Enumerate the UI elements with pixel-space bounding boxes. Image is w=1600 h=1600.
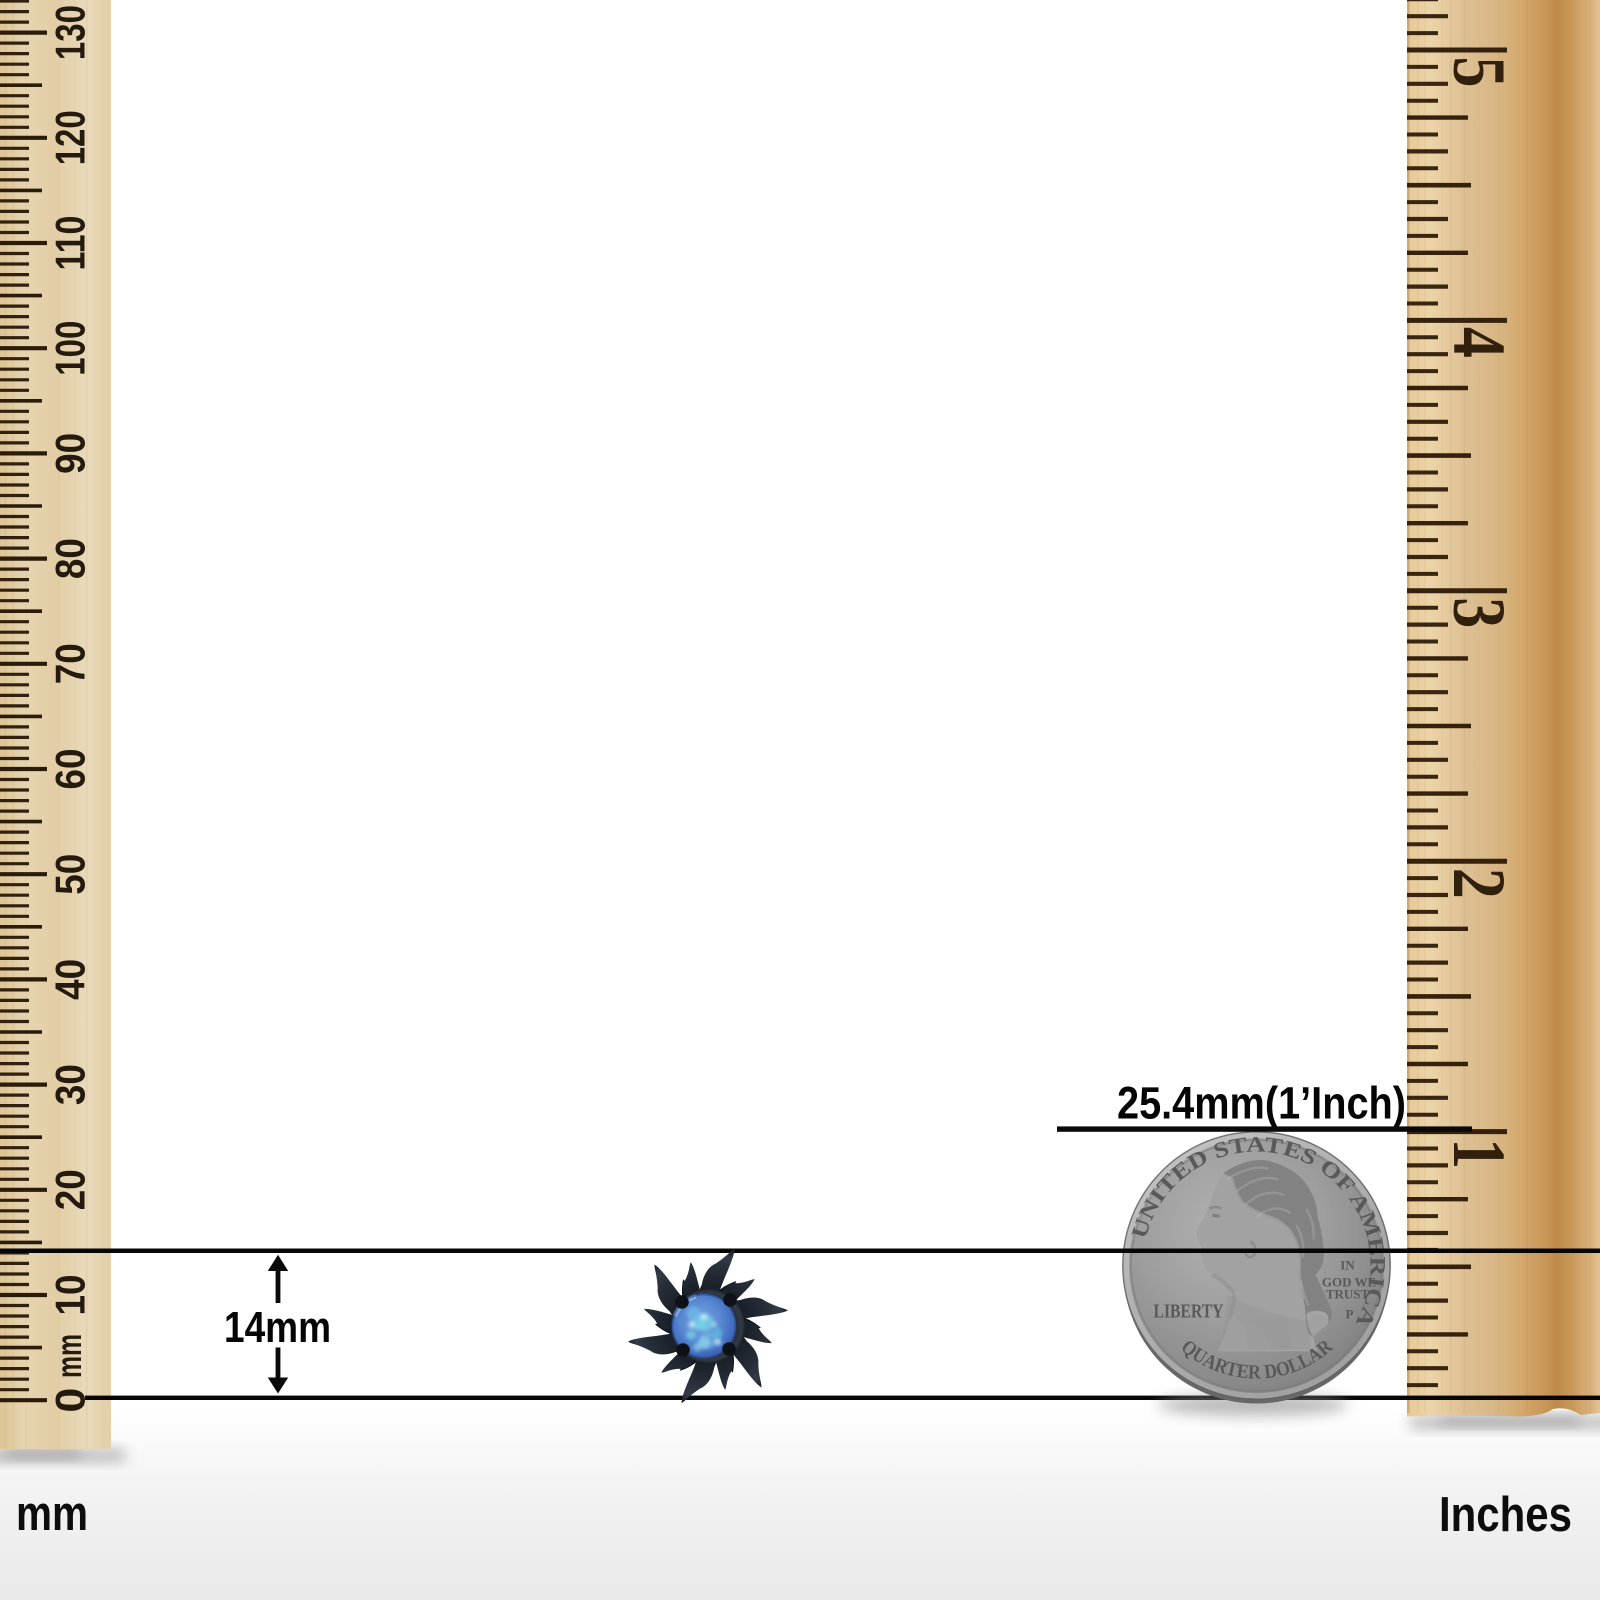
svg-text:10: 10 (47, 1275, 94, 1316)
svg-text:LIBERTY: LIBERTY (1154, 1301, 1224, 1323)
svg-text:IN: IN (1340, 1258, 1355, 1273)
svg-text:Inches: Inches (1439, 1488, 1572, 1542)
svg-text:mm: mm (16, 1487, 88, 1541)
svg-text:3: 3 (1437, 597, 1520, 628)
svg-text:70: 70 (47, 643, 94, 684)
svg-text:2: 2 (1437, 868, 1520, 899)
svg-text:120: 120 (47, 110, 94, 165)
svg-text:30: 30 (47, 1064, 94, 1105)
svg-text:80: 80 (47, 538, 94, 579)
svg-text:14mm: 14mm (224, 1304, 331, 1352)
svg-text:60: 60 (47, 749, 94, 790)
svg-text:100: 100 (47, 321, 94, 376)
svg-text:TRUST: TRUST (1326, 1287, 1370, 1302)
svg-text:50: 50 (47, 854, 94, 895)
svg-text:25.4mm(1’Inch): 25.4mm(1’Inch) (1117, 1078, 1406, 1129)
svg-text:20: 20 (47, 1169, 94, 1210)
svg-text:P: P (1346, 1307, 1354, 1322)
svg-text:1: 1 (1437, 1138, 1520, 1169)
svg-text:5: 5 (1437, 57, 1520, 88)
svg-text:mm: mm (50, 1334, 89, 1378)
svg-text:90: 90 (47, 433, 94, 474)
svg-text:110: 110 (47, 216, 94, 271)
svg-text:40: 40 (47, 959, 94, 1000)
svg-text:0: 0 (47, 1388, 94, 1413)
svg-text:130: 130 (47, 5, 94, 60)
svg-text:4: 4 (1437, 327, 1520, 358)
